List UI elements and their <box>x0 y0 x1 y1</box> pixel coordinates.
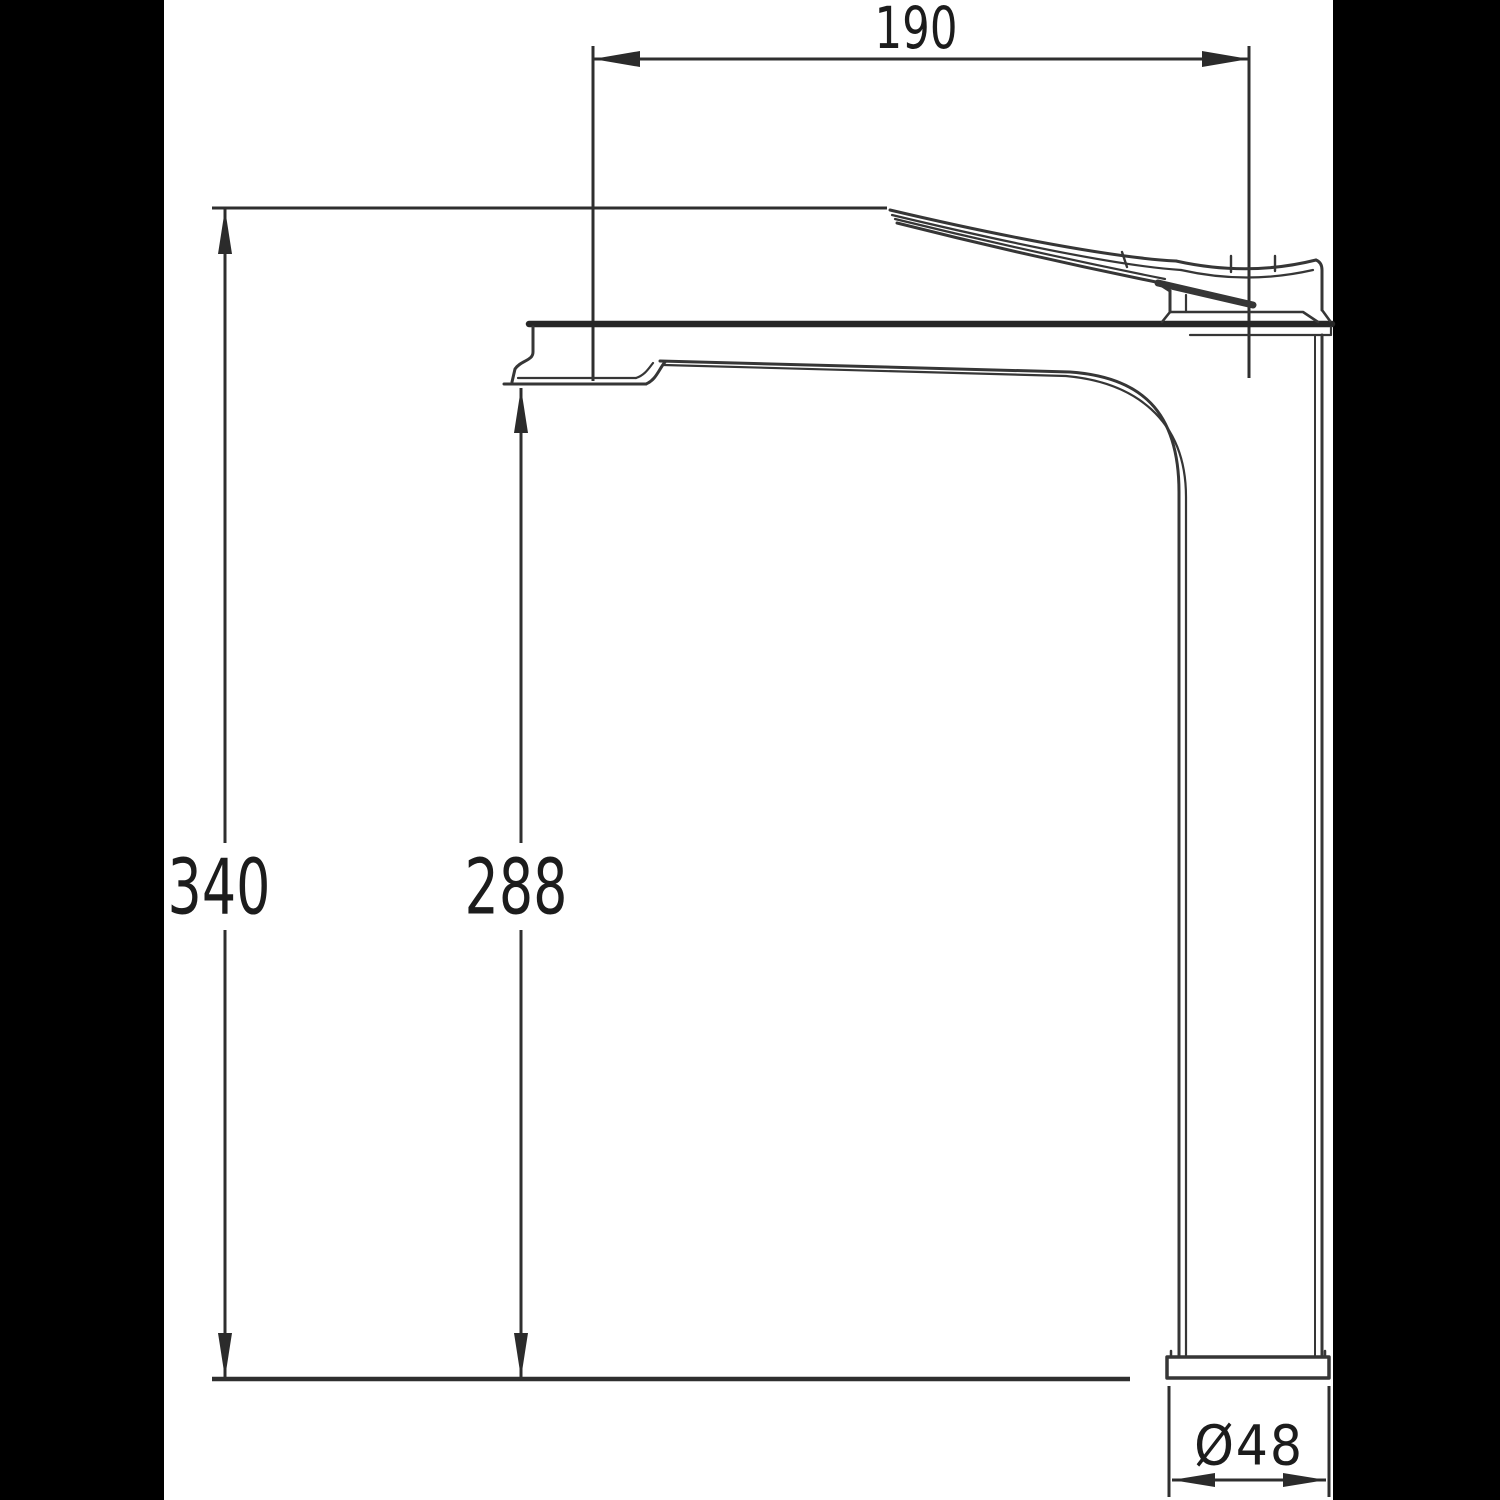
faucet-body <box>1315 335 1322 1357</box>
faucet-technical-drawing <box>0 0 1500 1500</box>
dim-label-diameter-48: Ø48 <box>1194 1419 1304 1474</box>
spout-underside-outer <box>660 361 1179 1357</box>
dim-label-340: 340 <box>168 850 271 927</box>
dim-label-190: 190 <box>874 0 957 57</box>
arrowhead-left-icon <box>593 51 640 67</box>
dimension-190 <box>593 46 1249 381</box>
arrowhead-down-icon <box>218 1333 232 1378</box>
faucet-top-plate <box>529 324 1332 335</box>
arrowhead-up-icon <box>218 209 232 254</box>
faucet-spout <box>504 327 1186 1357</box>
handle-grip-top <box>1176 260 1316 269</box>
spout-underside-inner <box>664 365 1186 1357</box>
dim-label-288: 288 <box>465 850 568 927</box>
faucet-outline <box>504 210 1332 1378</box>
handle-blade-top <box>890 210 1176 261</box>
faucet-base-flange <box>1167 1351 1329 1378</box>
arrowhead-up-icon <box>514 388 528 433</box>
faucet-handle <box>890 210 1322 310</box>
arrowhead-right-icon <box>1202 51 1249 67</box>
drawing-canvas: 190 340 288 Ø48 <box>0 0 1500 1500</box>
arrowhead-down-icon <box>514 1333 528 1378</box>
handle-neck-wedge <box>1158 283 1253 305</box>
